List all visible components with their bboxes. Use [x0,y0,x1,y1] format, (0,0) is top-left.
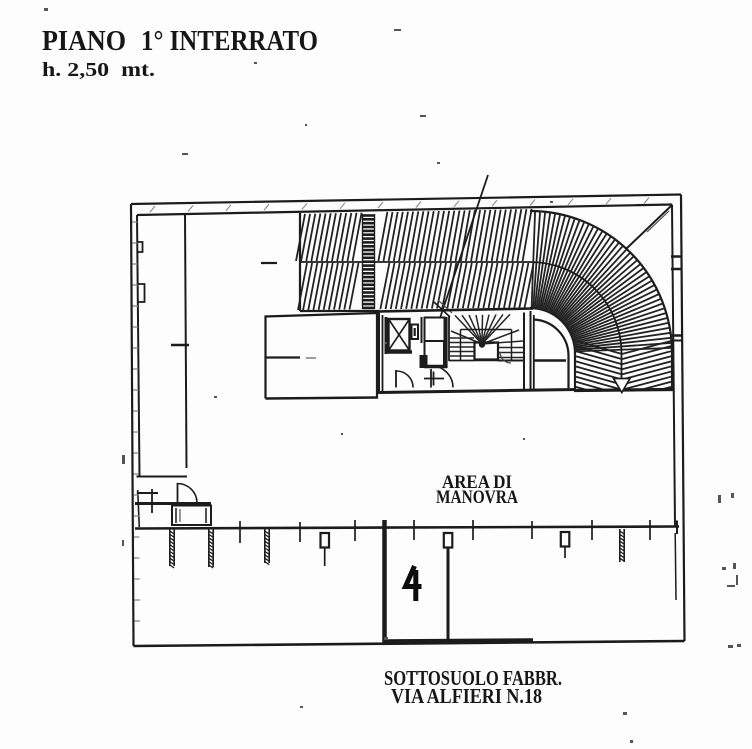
svg-text:h. 2,50 mt.: h. 2,50 mt. [42,59,155,81]
svg-text:MANOVRA: MANOVRA [436,487,518,508]
svg-text:VIA ALFIERI N.18: VIA ALFIERI N.18 [391,684,542,708]
svg-text:1° INTERRATO: 1° INTERRATO [141,25,318,57]
svg-text:PIANO: PIANO [42,25,126,57]
